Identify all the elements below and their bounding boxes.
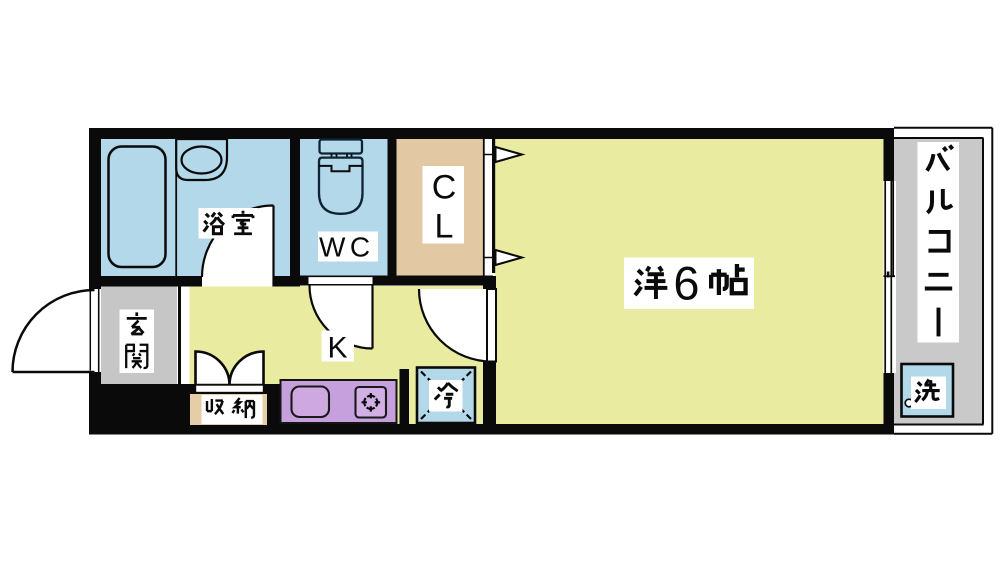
svg-text:K: K (327, 332, 347, 365)
svg-text:L: L (435, 208, 454, 246)
svg-text:WC: WC (319, 232, 375, 263)
svg-text:6: 6 (673, 257, 699, 310)
svg-text:C: C (432, 169, 457, 207)
